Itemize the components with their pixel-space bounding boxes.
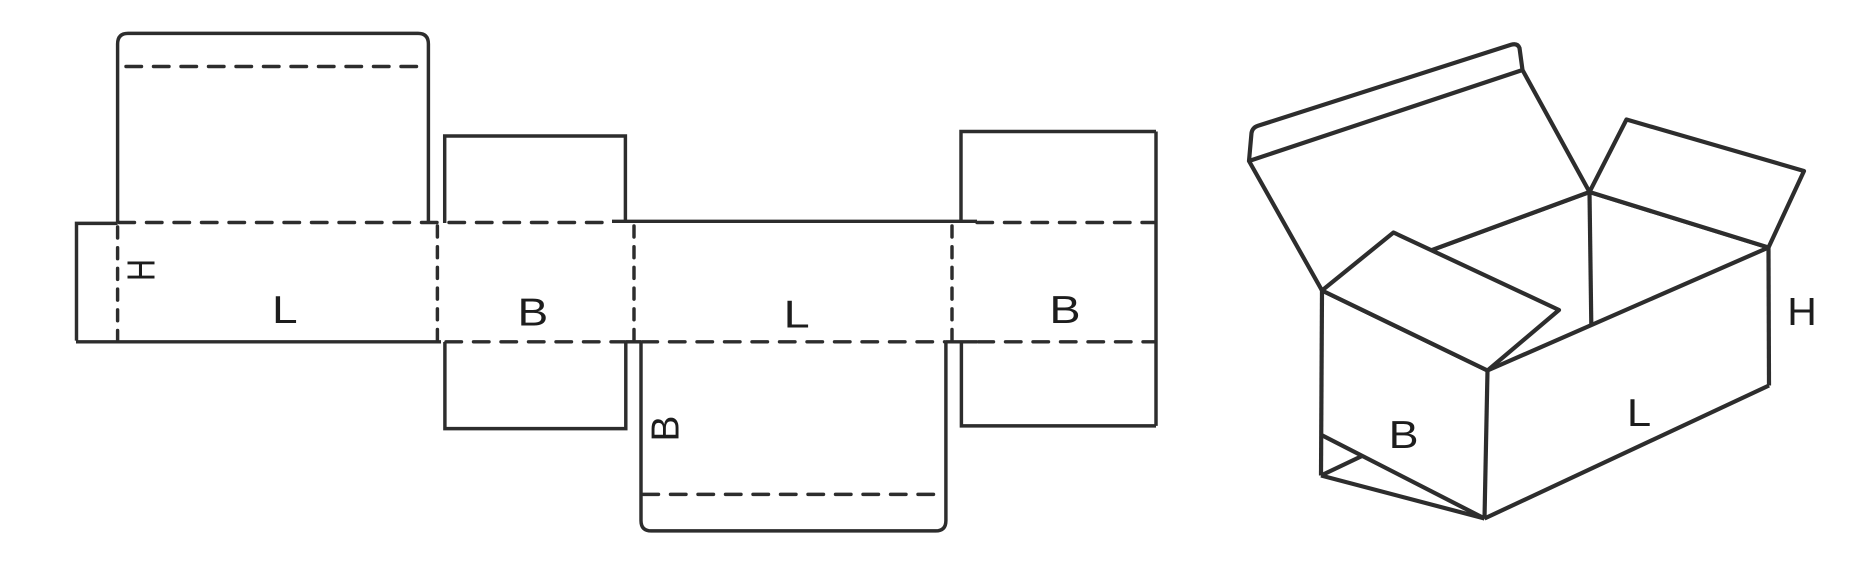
svg-text:B: B	[517, 291, 548, 335]
svg-text:L: L	[1627, 391, 1651, 434]
svg-text:B: B	[1389, 413, 1419, 457]
svg-text:B: B	[645, 416, 688, 442]
svg-text:H: H	[1787, 291, 1817, 334]
svg-text:L: L	[784, 293, 810, 336]
svg-text:L: L	[272, 288, 298, 332]
svg-text:B: B	[1049, 289, 1080, 332]
svg-text:H: H	[120, 259, 163, 281]
